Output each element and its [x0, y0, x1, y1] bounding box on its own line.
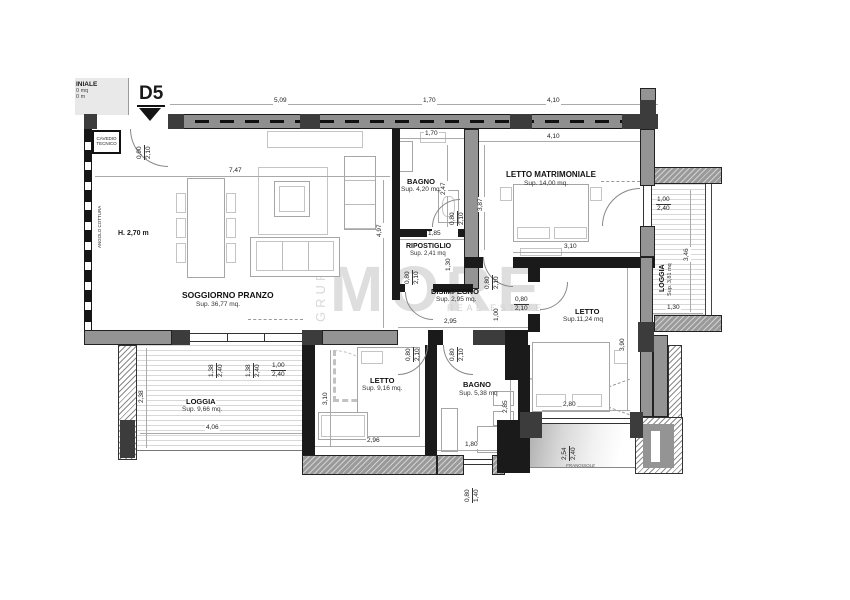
- dining-table: [187, 178, 225, 278]
- frac-top: 0,80: [449, 347, 458, 362]
- dim-label: 3,10: [323, 391, 330, 406]
- room-label-loggia-left: LOGGIA: [186, 398, 216, 406]
- dim-line: [95, 176, 390, 177]
- coffee-table-inner: [279, 186, 305, 212]
- dashed-line-letto-matrimoniale: [601, 181, 640, 182]
- dim-line: [140, 433, 302, 434]
- wall: [458, 229, 465, 237]
- wall: [513, 257, 655, 268]
- room-label-soggiorno: SOGGIORNO PRANZO: [182, 291, 274, 300]
- window-mullion: [227, 333, 228, 342]
- wall: [84, 114, 97, 129]
- frac-bot: 2,40: [254, 363, 262, 378]
- room-area-letto-matrimoniale: Sup. 14,00 mq.: [524, 181, 568, 188]
- frac-top: 1,38: [208, 363, 217, 378]
- dim-line: [330, 350, 331, 446]
- frac-top: 1,38: [245, 363, 254, 378]
- angolo-cottura-label: ANGOLO COTTURA: [97, 206, 102, 248]
- frac-bot: 2,10: [145, 145, 153, 160]
- dim-line: [170, 104, 658, 105]
- wall: [640, 226, 655, 257]
- wall: [653, 335, 668, 417]
- frac-top: 2,54: [561, 446, 570, 461]
- dim-line: [653, 313, 703, 314]
- door-dim-loggia-left: 1,002,40: [271, 362, 286, 379]
- dim-label: 1,00: [494, 307, 501, 322]
- dim-label: 2,85: [503, 399, 510, 414]
- dim-label: 2,96: [366, 438, 381, 445]
- sofa-cushions: [256, 241, 334, 271]
- frac-bot: 2,40: [217, 363, 225, 378]
- wall-column: [520, 412, 542, 438]
- frac-top: 0,80: [405, 347, 414, 362]
- loggia-left-floor: [137, 345, 302, 450]
- room-area-soggiorno: Sup. 36,77 mq.: [196, 302, 240, 309]
- frangisole-label: FRANGISOLE: [566, 463, 595, 468]
- dim-label: 2,80: [562, 402, 577, 409]
- kitchen-counter: [267, 131, 363, 148]
- door-dim-bagno1: 0,802,10: [449, 211, 466, 226]
- frac-bot: 1,40: [473, 488, 481, 503]
- chair: [176, 193, 186, 213]
- washbasin-column: [441, 408, 458, 452]
- dim-label: 4,06: [205, 425, 220, 432]
- dim-label: 4,10: [546, 134, 561, 141]
- room-area-letto3: Sup. 9,16 mq.: [362, 386, 402, 393]
- wall-loggia-arm: [654, 315, 722, 332]
- room-area-loggia-right: Sup. 3,81 mq: [668, 263, 674, 296]
- chair: [226, 218, 236, 238]
- wall-column: [172, 330, 190, 345]
- window-loggia: [190, 333, 302, 342]
- cavedio-tecnico-box: CAVEDIO TECNICO: [92, 130, 121, 154]
- room-label-ripostiglio: RIPOSTIGLIO: [406, 243, 451, 250]
- chair: [176, 218, 186, 238]
- door-dim-loggia-right: 1,002,40: [656, 196, 671, 213]
- frac-bot: 2,10: [514, 305, 529, 313]
- wall-hatched: [668, 345, 682, 418]
- room-label-disimpegno: DISIMPEGNO: [431, 288, 479, 296]
- room-label-bagno2: BAGNO: [463, 381, 491, 389]
- door-dim-entrance: 0,902,10: [136, 145, 153, 160]
- cavedio-label2: TECNICO: [94, 141, 119, 146]
- dim-label: 3,90: [620, 337, 627, 352]
- dim-line: [315, 446, 425, 447]
- door-dim-letto2: 0,802,10: [514, 296, 529, 313]
- dim-label: 1,30: [666, 305, 681, 312]
- wardrobe-inner: [321, 415, 365, 437]
- wall: [528, 314, 540, 332]
- wall-column: [473, 330, 505, 345]
- room-label-letto3: LETTO: [370, 377, 394, 385]
- window-mullion: [264, 333, 265, 342]
- wall: [392, 129, 400, 300]
- wall-column: [638, 322, 654, 352]
- wall: [84, 330, 172, 345]
- wall: [322, 330, 398, 345]
- room-area-ripostiglio: Sup. 2,41 mq: [410, 251, 446, 257]
- door-dim-letto-matrimoniale: 0,802,10: [484, 275, 501, 290]
- door-arc-loggia-right: [602, 188, 640, 226]
- wall: [428, 330, 443, 345]
- room-label-bagno1: BAGNO: [407, 178, 435, 186]
- frac-bot: 2,10: [413, 270, 421, 285]
- wall: [302, 455, 437, 475]
- sofa-vertical: [344, 156, 376, 230]
- window-dim-loggia-b: 1,382,40: [245, 363, 262, 378]
- dim-label: 4,97: [377, 223, 384, 238]
- chair: [226, 193, 236, 213]
- wall-column: [630, 412, 643, 438]
- frac-top: 0,80: [514, 296, 529, 305]
- wall: [640, 129, 655, 186]
- dim-label: 2,38: [139, 389, 146, 404]
- dim-line: [383, 180, 384, 328]
- dim-label: 3,10: [563, 244, 578, 251]
- frac-top: 1,00: [271, 362, 286, 371]
- nightstand: [590, 187, 602, 201]
- frac-top: 0,80: [484, 275, 493, 290]
- dim-label: 1,70: [422, 98, 437, 105]
- wall: [302, 345, 315, 470]
- dim-label: 5,09: [273, 98, 288, 105]
- wall: [640, 100, 656, 114]
- pillow: [517, 227, 550, 239]
- window-dim-bagno2: 0,801,40: [464, 488, 481, 503]
- dim-label: 1,80: [464, 442, 479, 449]
- frac-bot: 2,40: [656, 205, 671, 213]
- wall: [528, 268, 540, 282]
- height-note: H. 2,70 m: [118, 230, 149, 237]
- wall-column: [300, 114, 320, 129]
- wall-column: [510, 114, 532, 129]
- dim-label: 3,87: [478, 197, 485, 212]
- wall-top-band: [168, 114, 658, 129]
- dim-label: 4,10: [546, 98, 561, 105]
- door-arc-letto2: [540, 282, 568, 310]
- dim-label: 3,46: [684, 247, 691, 262]
- frac-top: 0,80: [404, 270, 413, 285]
- loggia-left-edge: [137, 450, 302, 451]
- wall: [464, 257, 483, 268]
- frac-bot: 2,10: [458, 347, 466, 362]
- washbasin: [399, 141, 413, 172]
- dashed-line-soggiorno: [248, 319, 303, 320]
- fragment-line1: INIALE: [76, 81, 97, 88]
- frac-top: 0,90: [136, 145, 145, 160]
- unit-label: D5: [137, 83, 165, 107]
- dim-label: 7,47: [228, 168, 243, 175]
- dim-line: [470, 141, 642, 142]
- frac-bot: 2,40: [271, 371, 286, 379]
- frac-bot: 2,10: [458, 211, 466, 226]
- dim-line: [513, 252, 641, 253]
- unit-marker-icon: [139, 108, 161, 121]
- wall-pillar: [120, 420, 135, 458]
- door-dim-ripostiglio: 0,802,10: [404, 270, 421, 285]
- room-area-loggia-left: Sup. 9,66 mq.: [182, 407, 222, 414]
- dim-frangisole: 2,542,40: [561, 446, 578, 461]
- wall-party: [84, 129, 92, 332]
- pillow: [361, 351, 383, 364]
- window-loggia-door: [643, 186, 652, 226]
- dim-label: 1,30: [446, 257, 453, 272]
- wall: [392, 284, 405, 292]
- dim-line: [398, 327, 528, 328]
- room-label-letto-matrimoniale: LETTO MATRIMONIALE: [506, 171, 596, 179]
- section-line: [170, 120, 656, 123]
- dim-label: 2,47: [441, 181, 448, 196]
- wall-column: [302, 330, 322, 345]
- window-dim-loggia-a: 1,382,40: [208, 363, 225, 378]
- room-area-bagno2: Sup. 5,38 mq: [459, 391, 498, 398]
- frac-top: 0,80: [449, 211, 458, 226]
- frangisole-floor: [530, 424, 635, 468]
- frac-top: 1,00: [656, 196, 671, 205]
- fragment-line3: 0 m: [76, 94, 97, 100]
- dim-line: [627, 268, 628, 410]
- window-letto2: [542, 418, 630, 424]
- frac-bot: 2,10: [493, 275, 501, 290]
- loggia-right-edge: [705, 184, 712, 315]
- wall-column: [168, 114, 184, 129]
- wall-loggia-arm: [654, 167, 722, 184]
- frac-bot: 2,10: [414, 347, 422, 362]
- adjacent-unit-label-fragment: INIALE 0 mq 0 m: [76, 81, 97, 100]
- room-area-disimpegno: Sup. 2,95 mq.: [436, 297, 476, 304]
- dim-label: 2,95: [443, 319, 458, 326]
- dim-line: [398, 138, 465, 139]
- dim-line: [398, 239, 465, 240]
- frac-top: 0,80: [464, 488, 473, 503]
- nightstand: [500, 187, 512, 201]
- dim-line: [146, 348, 147, 448]
- floor-plan: GRUPPO MORE REAL ESTATE INIALE 0 mq 0 m …: [0, 0, 850, 600]
- pillow: [554, 227, 587, 239]
- dim-line: [542, 410, 630, 411]
- door-dim-bagno2: 0,802,10: [449, 347, 466, 362]
- nightstand: [614, 350, 628, 364]
- room-area-letto2: Sup.11,24 mq: [563, 317, 603, 324]
- frac-bot: 2,40: [570, 446, 578, 461]
- wall-column: [622, 114, 658, 129]
- dim-label: 1,70: [424, 131, 439, 138]
- room-label-letto2: LETTO: [575, 308, 599, 316]
- wall-pillar-slot: [651, 431, 660, 462]
- chair: [226, 243, 236, 263]
- window-bagno2: [464, 459, 492, 465]
- room-label-loggia-right: LOGGIA: [659, 264, 666, 292]
- dim-label: 1,85: [427, 231, 442, 238]
- door-dim-letto3: 0,802,10: [405, 347, 422, 362]
- wall: [437, 455, 464, 475]
- wall: [425, 345, 437, 455]
- chair: [176, 243, 186, 263]
- room-area-bagno1: Sup. 4,20 mq: [401, 187, 440, 194]
